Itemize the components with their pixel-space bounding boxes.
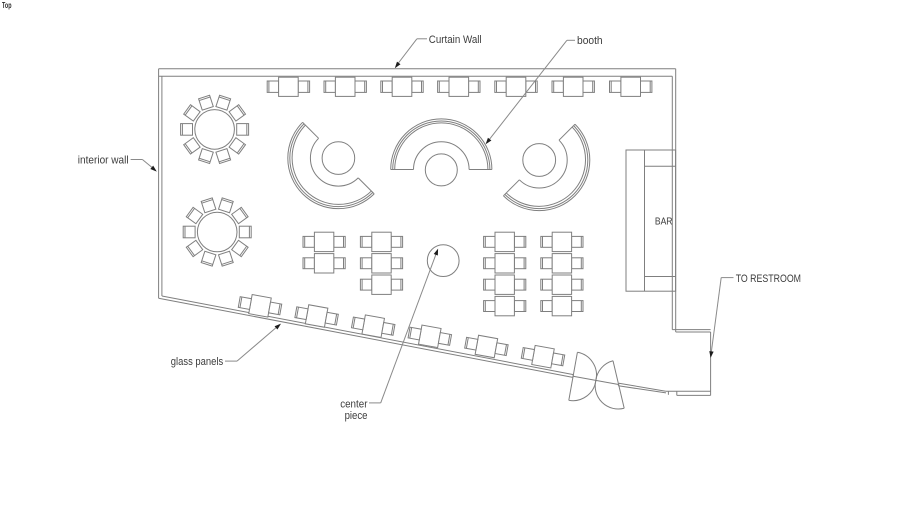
svg-text:center: center (340, 398, 368, 410)
svg-text:BAR: BAR (655, 216, 673, 228)
svg-text:piece: piece (345, 410, 368, 422)
svg-text:booth: booth (577, 35, 603, 47)
svg-text:Top: Top (2, 0, 12, 10)
svg-text:Curtain Wall: Curtain Wall (429, 34, 482, 46)
svg-text:TO RESTROOM: TO RESTROOM (736, 273, 801, 285)
svg-text:glass panels: glass panels (171, 356, 224, 368)
svg-text:interior wall: interior wall (78, 155, 129, 167)
